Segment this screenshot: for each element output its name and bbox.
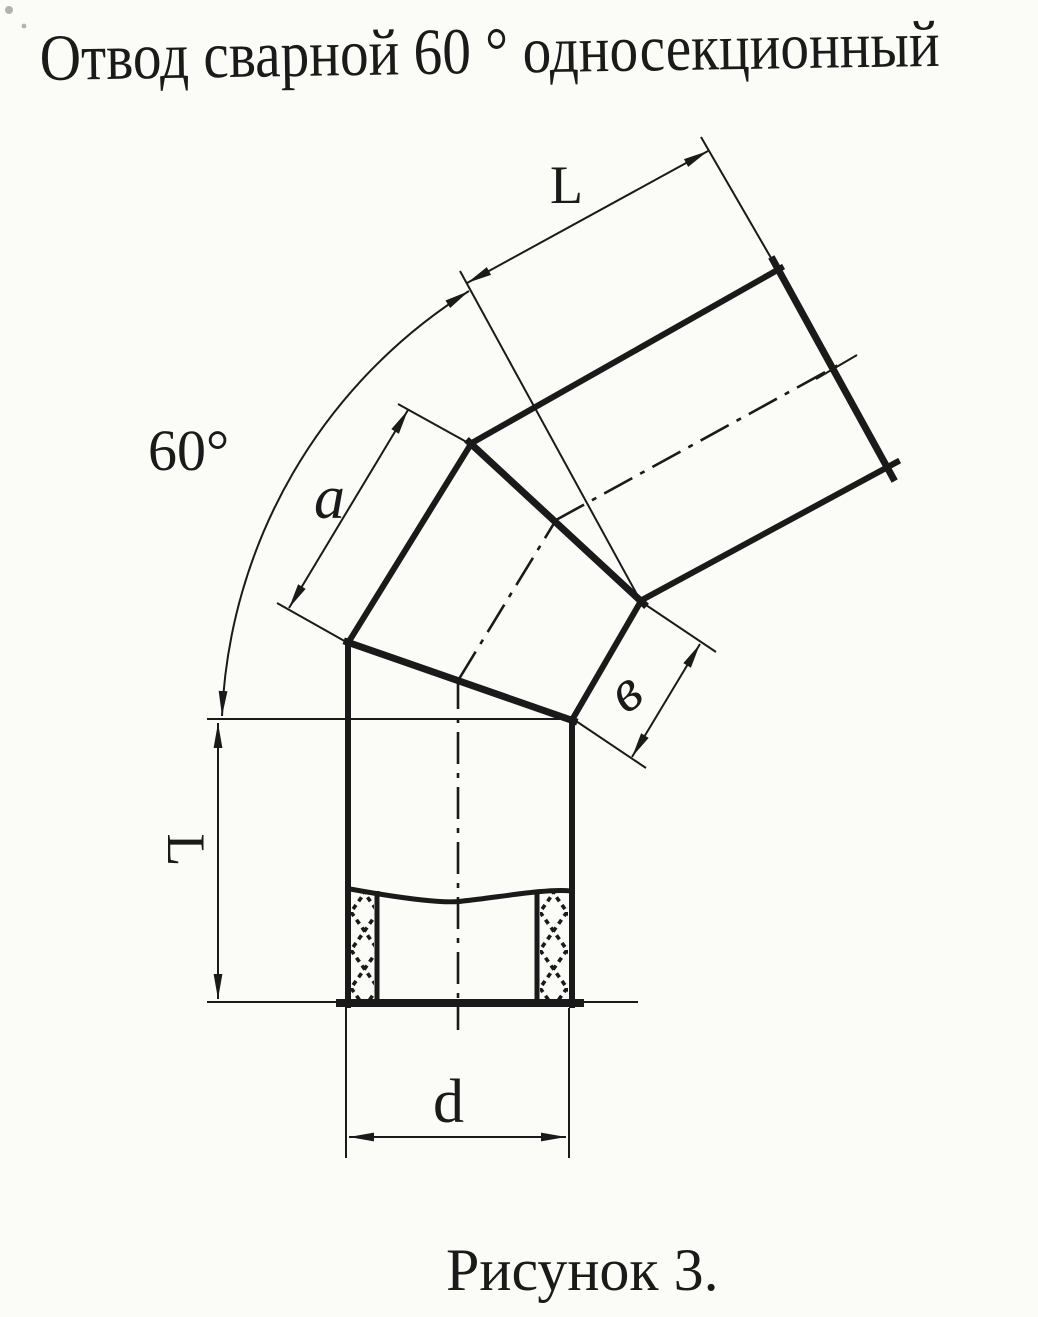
pipe-outline [340,260,897,1005]
weld-b-label: в [595,657,654,726]
dim-line-upper-L [467,151,708,283]
weld-seam-upper [469,442,644,604]
middle-section-left-edge [348,444,471,643]
ext-line-upper-L-outer [701,137,778,270]
figure-caption: Рисунок 3. [446,1237,719,1303]
upper-pipe-top-edge [470,268,781,444]
scan-speck [22,24,27,29]
ext-line-b-upper [643,603,716,652]
elbow-diagram: Отвод сварной 60 ° односекционный L 60° … [0,0,1038,1317]
upper-pipe-bottom-edge [640,462,897,601]
scan-speck [5,6,13,14]
socket-hatch-left [351,892,374,1002]
upper-length-label: L [550,155,583,215]
centerline-upper-pipe [556,364,840,520]
centerlines [458,355,857,1030]
lower-length-label: L [156,834,216,867]
ext-line-b-lower [573,719,646,768]
ext-line-a-upper [398,404,472,445]
page-title: Отвод сварной 60 ° односекционный [39,8,940,95]
weld-seam-lower [347,642,574,721]
centerline-middle-section [459,520,556,679]
section-a-label: a [314,464,345,532]
ext-line-a-lower [277,603,348,643]
angle-label: 60° [148,418,229,483]
dimension-lines [218,151,708,1137]
socket-hatch-right [540,892,568,1002]
diameter-label: d [433,1068,464,1136]
socket-detail [350,889,571,1002]
scanned-drawing-page: Отвод сварной 60 ° односекционный L 60° … [0,0,1038,1317]
